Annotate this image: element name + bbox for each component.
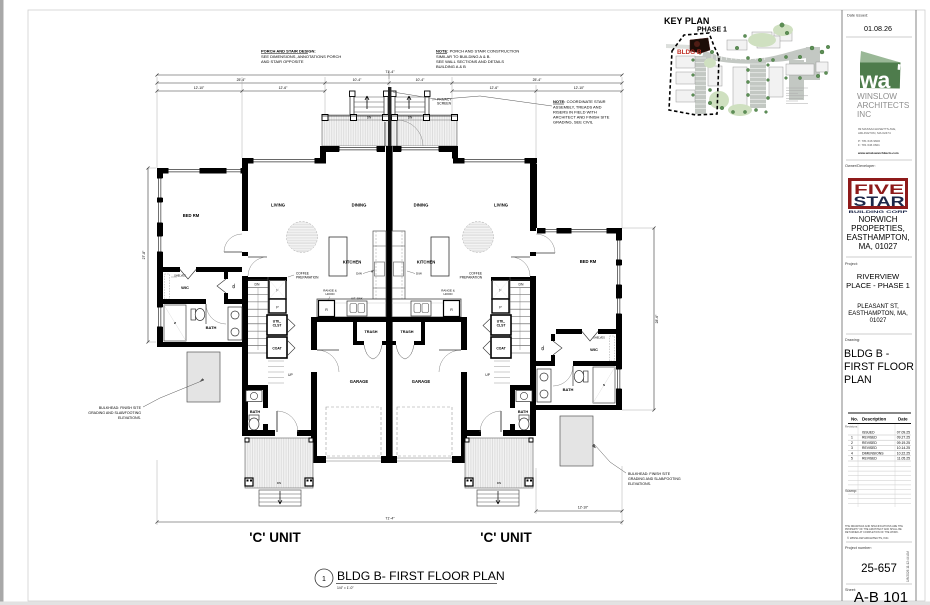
svg-text:RETURNED AT COMPLETION OF THE: RETURNED AT COMPLETION OF THE WORK. [845,531,899,534]
svg-text:UP: UP [485,373,490,377]
svg-text:12'-10": 12'-10" [574,86,585,90]
svg-text:WIC: WIC [590,347,598,352]
svg-text:LIVING: LIVING [271,203,285,208]
svg-text:AND STAIR OPPOSITE: AND STAIR OPPOSITE [261,59,304,64]
svg-text:PREPARATION: PREPARATION [460,276,483,280]
svg-text:2: 2 [851,441,853,445]
svg-text:07.09.25: 07.09.25 [897,431,910,435]
svg-text:BULKHEAD: FINISH SITE: BULKHEAD: FINISH SITE [628,472,671,476]
svg-text:COAT: COAT [496,347,506,351]
svg-text:BATH: BATH [563,387,574,392]
svg-text:10.22.25: 10.22.25 [897,451,910,455]
svg-text:Date issued:: Date issued: [847,14,868,18]
svg-text:SCREEN: SCREEN [437,102,452,106]
svg-text:DN: DN [255,283,260,287]
svg-text:DIMENSIONS: DIMENSIONS [862,451,884,455]
svg-text:Revisions:: Revisions: [845,425,858,429]
svg-text:GARAGE: GARAGE [350,379,369,384]
svg-text:REVISED: REVISED [862,446,877,450]
svg-text:WIC: WIC [181,285,189,290]
svg-text:INC: INC [857,110,871,119]
svg-text:01.08.26: 01.08.26 [864,24,892,33]
svg-text:NOTE: PORCH AND STAIR CONSTRUC: NOTE: PORCH AND STAIR CONSTRUCTION [436,49,519,54]
svg-text:STAR: STAR [854,193,905,209]
svg-text:CLST: CLST [273,324,283,328]
svg-text:Drawing:: Drawing: [845,338,860,342]
svg-text:25-657: 25-657 [861,563,897,575]
svg-text:ISSUED: ISSUED [862,431,875,435]
svg-text:REVISED: REVISED [862,441,877,445]
svg-text:REVISED: REVISED [862,436,877,440]
svg-text:EASTHAMPTON,: EASTHAMPTON, [847,233,910,242]
svg-text:1/4" = 1'-0": 1/4" = 1'-0" [337,586,354,590]
svg-text:REVISED: REVISED [862,457,877,461]
svg-text:COAT: COAT [272,347,282,351]
svg-text:DN: DN [408,116,413,120]
svg-text:GRADING AND SLAB/FOOTING: GRADING AND SLAB/FOOTING [628,477,681,481]
svg-text:CL: CL [232,283,236,289]
svg-text:BED RM: BED RM [183,213,200,218]
svg-text:10.14.25: 10.14.25 [897,446,910,450]
svg-text:71'-4": 71'-4" [385,70,395,74]
svg-text:www.winslowarchitects.com: www.winslowarchitects.com [857,151,899,155]
svg-text:DN: DN [497,481,501,485]
svg-text:BUILDING CORP: BUILDING CORP [849,210,910,214]
svg-text:Date: Date [898,417,908,422]
svg-text:LIVING: LIVING [494,203,508,208]
svg-text:Stamp:: Stamp: [845,489,857,493]
svg-text:DINING: DINING [352,203,367,208]
svg-text:09.27.25: 09.27.25 [897,436,910,440]
svg-text:R: R [325,308,328,312]
svg-text:TRASH: TRASH [400,330,413,334]
svg-text:3: 3 [851,446,853,450]
svg-text:A-B 101: A-B 101 [854,589,908,605]
svg-text:PHASE 1: PHASE 1 [697,27,727,34]
svg-text:BLDG B -: BLDG B - [844,348,890,360]
svg-text:Description: Description [862,417,886,422]
svg-text:KITCHEN: KITCHEN [343,260,362,265]
svg-text:PLACE - PHASE 1: PLACE - PHASE 1 [846,281,910,290]
svg-text:1: 1 [322,576,326,583]
svg-text:BUILDING A & B: BUILDING A & B [436,64,466,69]
svg-text:© WINSLOW ARCHITECTS, INC.: © WINSLOW ARCHITECTS, INC. [847,536,889,540]
svg-text:25'-4": 25'-4" [533,78,542,82]
svg-text:BATH: BATH [206,325,217,330]
svg-text:D/W: D/W [416,272,422,276]
svg-text:F: 781 646 0601: F: 781 646 0601 [858,143,880,147]
svg-text:GRADING, SEE CIVIL: GRADING, SEE CIVIL [553,120,594,125]
svg-text:PORCH AND STAIR DESIGN:: PORCH AND STAIR DESIGN: [261,49,316,54]
svg-text:BLDG B- FIRST FLOOR PLAN: BLDG B- FIRST FLOOR PLAN [337,569,505,583]
svg-text:12'-10": 12'-10" [194,86,205,90]
svg-text:1/8/2026 11:12:44 AM: 1/8/2026 11:12:44 AM [906,551,910,582]
svg-text:GRADING AND SLAB/FOOTING: GRADING AND SLAB/FOOTING [88,411,141,415]
svg-text:HOOD: HOOD [326,292,336,296]
svg-text:UP: UP [288,373,293,377]
svg-text:DN: DN [367,116,372,120]
svg-text:PLAN: PLAN [844,374,872,386]
svg-text:GARAGE: GARAGE [412,379,431,384]
svg-text:01027: 01027 [870,318,887,324]
svg-text:ELEVATIONS.: ELEVATIONS. [118,416,141,420]
svg-text:Owner/Developer:: Owner/Developer: [845,164,876,168]
svg-text:DN: DN [277,481,281,485]
svg-text:Project:: Project: [845,262,858,266]
svg-text:25'-4": 25'-4" [237,78,246,82]
svg-text:WINSLOW: WINSLOW [857,92,897,101]
svg-text:'C' UNIT: 'C' UNIT [249,530,301,545]
svg-text:10'-4": 10'-4" [416,78,425,82]
svg-text:BED RM: BED RM [580,259,597,264]
svg-text:11.05.25: 11.05.25 [897,457,910,461]
svg-text:PREPARATION: PREPARATION [296,276,319,280]
svg-text:'C' UNIT: 'C' UNIT [480,530,532,545]
svg-text:No.: No. [851,417,858,422]
svg-text:12'-6": 12'-6" [490,86,499,90]
svg-text:KIT. SINK: KIT. SINK [351,297,363,301]
svg-text:5: 5 [851,457,853,461]
svg-text:NORWICH: NORWICH [859,215,898,224]
svg-text:TRASH: TRASH [364,330,377,334]
svg-text:PROPERTIES,: PROPERTIES, [851,224,905,233]
svg-text:HOOD: HOOD [444,292,454,296]
svg-text:SHELVES: SHELVES [593,336,605,340]
svg-text:1: 1 [851,436,853,440]
svg-text:MA, 01027: MA, 01027 [859,242,898,251]
svg-text:4: 4 [851,451,853,455]
svg-text:NOTE: COORDINATE STAIR: NOTE: COORDINATE STAIR [553,99,606,104]
svg-text:KEY PLAN: KEY PLAN [664,16,709,26]
svg-text:ARCHITECTS: ARCHITECTS [857,101,910,110]
svg-text:RIVERVIEW: RIVERVIEW [857,272,900,281]
svg-text:FIRST FLOOR: FIRST FLOOR [844,361,914,373]
svg-text:DINING: DINING [414,203,429,208]
svg-text:Project number:: Project number: [845,546,872,550]
svg-text:71'-4": 71'-4" [385,517,395,521]
svg-text:CL: CL [541,345,545,351]
svg-text:27'-8": 27'-8" [142,250,146,259]
svg-text:CLST: CLST [497,324,507,328]
svg-text:ELEVATIONS.: ELEVATIONS. [628,482,651,486]
svg-text:PLEASANT ST,: PLEASANT ST, [857,304,899,310]
svg-text:12'-6": 12'-6" [279,86,288,90]
svg-text:EASTHAMPTON, MA,: EASTHAMPTON, MA, [848,311,908,317]
svg-text:wa: wa [859,67,890,93]
svg-text:BATH: BATH [518,410,529,414]
svg-text:KITCHEN: KITCHEN [417,260,436,265]
svg-text:10'-4": 10'-4" [353,78,362,82]
svg-text:DN: DN [519,283,524,287]
svg-text:BLDG B: BLDG B [677,49,702,56]
svg-text:09.19.25: 09.19.25 [897,441,910,445]
svg-text:R: R [450,308,453,312]
svg-text:28'-6": 28'-6" [655,314,659,323]
svg-text:12'-10": 12'-10" [578,506,589,510]
svg-text:BATH: BATH [250,410,261,414]
svg-text:D/W: D/W [356,272,362,276]
svg-text:BULKHEAD: FINISH SITE: BULKHEAD: FINISH SITE [99,406,142,410]
svg-text:ARLINGTON, MA 02474: ARLINGTON, MA 02474 [858,131,891,135]
